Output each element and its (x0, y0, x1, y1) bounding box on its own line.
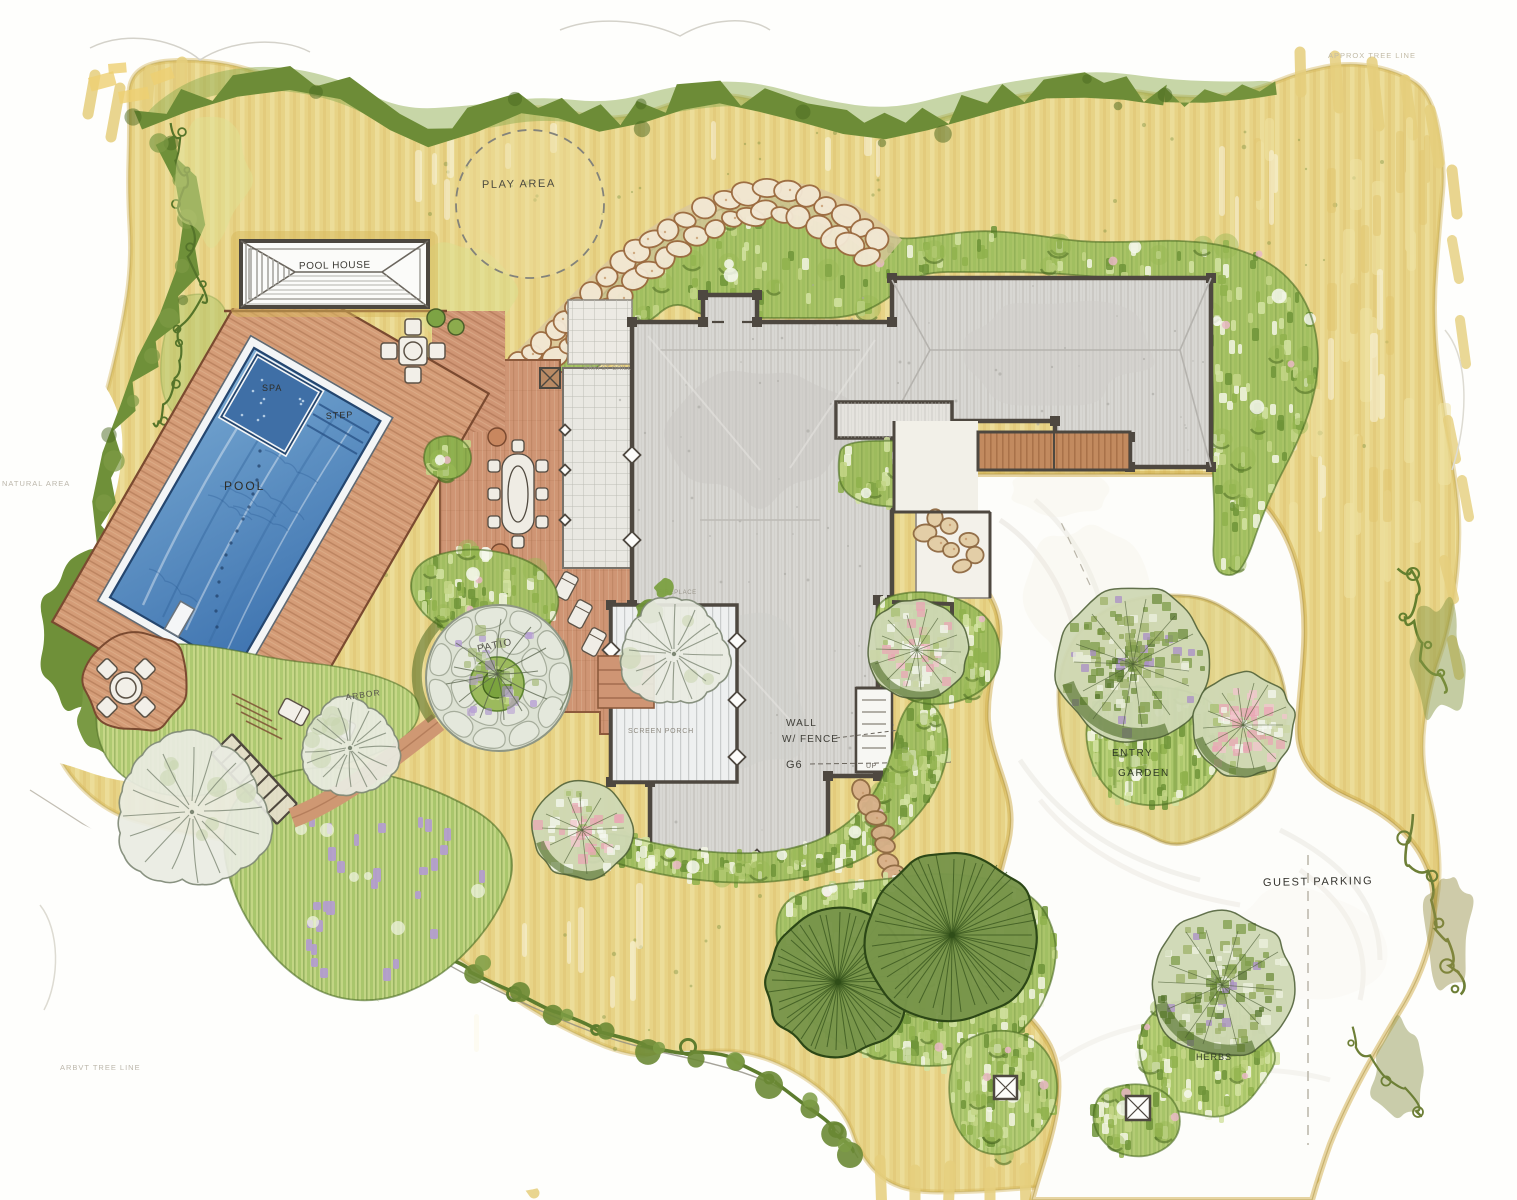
svg-text:ENTRY: ENTRY (1112, 748, 1153, 759)
svg-text:SCREEN PORCH: SCREEN PORCH (628, 728, 694, 735)
svg-text:POOL HOUSE: POOL HOUSE (299, 260, 371, 272)
svg-text:POOL: POOL (224, 479, 265, 493)
svg-text:W/ FENCE: W/ FENCE (782, 734, 839, 745)
svg-text:ARBVT TREE LINE: ARBVT TREE LINE (60, 1063, 141, 1072)
svg-text:GUEST PARKING: GUEST PARKING (1263, 875, 1373, 889)
svg-text:WALL: WALL (786, 718, 817, 729)
svg-text:UP: UP (866, 763, 877, 770)
svg-text:NATURAL AREA: NATURAL AREA (2, 479, 70, 488)
svg-text:STEP: STEP (326, 410, 354, 421)
svg-text:SPA: SPA (262, 383, 282, 393)
svg-text:PLAY AREA: PLAY AREA (482, 178, 556, 191)
svg-text:BRKFST GRILL: BRKFST GRILL (584, 366, 632, 372)
svg-text:G6: G6 (786, 759, 803, 771)
svg-text:GARDEN: GARDEN (1118, 768, 1170, 779)
svg-text:HERBS: HERBS (1196, 1052, 1232, 1062)
svg-text:APPROX TREE LINE: APPROX TREE LINE (1328, 51, 1416, 60)
